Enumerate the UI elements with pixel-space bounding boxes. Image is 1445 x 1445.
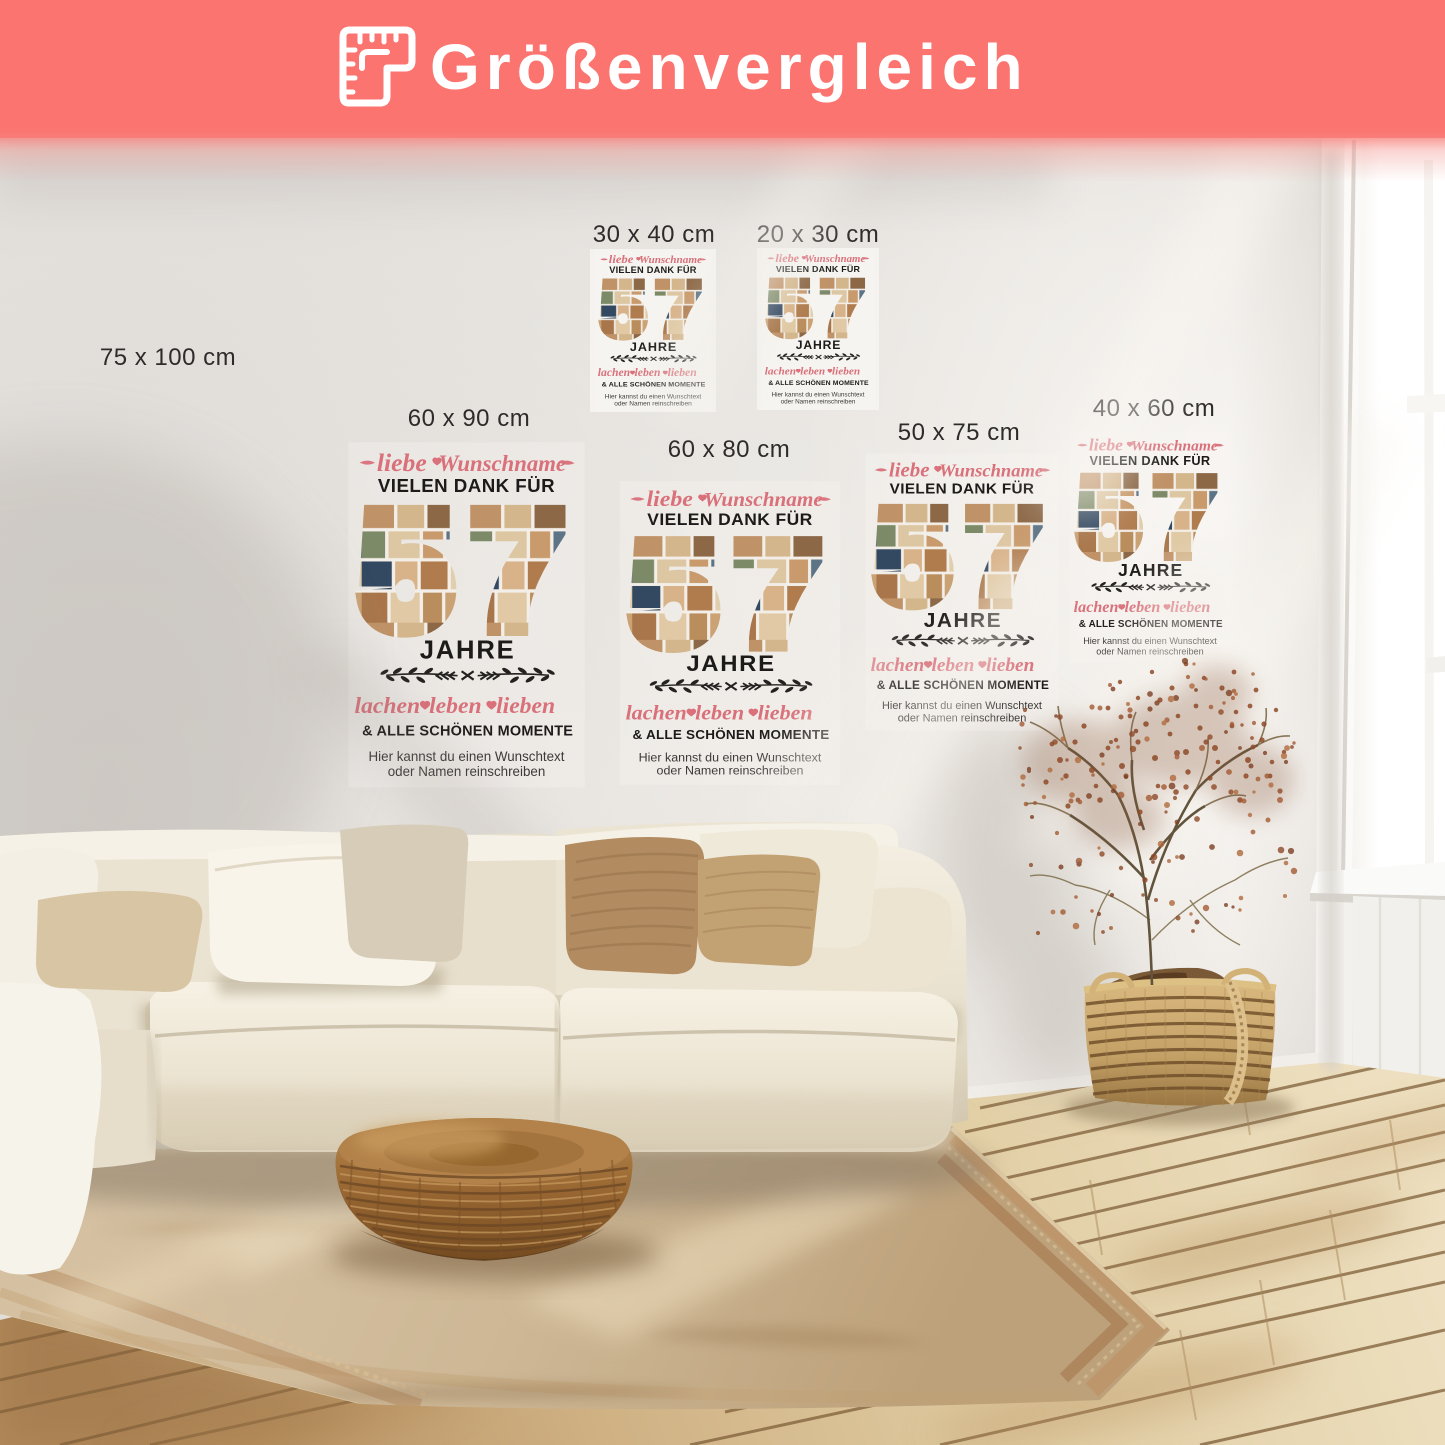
svg-text:30 x 40 cm: 30 x 40 cm — [593, 221, 715, 248]
svg-text:60 x 80 cm: 60 x 80 cm — [668, 436, 790, 463]
svg-text:75 x 100 cm: 75 x 100 cm — [100, 344, 236, 371]
svg-text:60 x 90 cm: 60 x 90 cm — [408, 405, 530, 432]
svg-text:Größenvergleich: Größenvergleich — [430, 31, 1029, 103]
svg-text:50 x 75 cm: 50 x 75 cm — [898, 419, 1020, 446]
